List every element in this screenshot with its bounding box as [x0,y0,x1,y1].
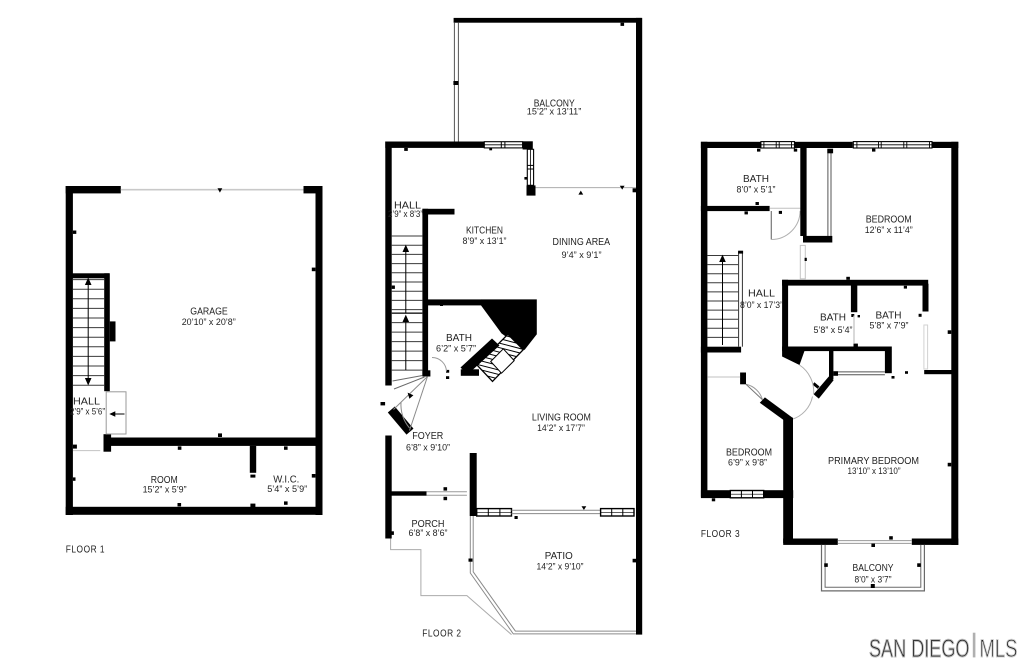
svg-text:2’9” x 5’6”: 2’9” x 5’6” [70,407,105,418]
svg-text:6’9” x 9’8”: 6’9” x 9’8” [728,457,767,468]
svg-text:BATH: BATH [446,333,472,344]
svg-text:LIVING ROOM: LIVING ROOM [532,412,591,423]
svg-text:20’10” x 20’8”: 20’10” x 20’8” [182,317,236,328]
svg-text:2’9” x 8’3”: 2’9” x 8’3” [388,209,423,220]
svg-text:8’0” x 3’7”: 8’0” x 3’7” [855,574,892,585]
svg-text:6’8” x 9’10”: 6’8” x 9’10” [406,443,450,454]
svg-text:6’8” x 8’6”: 6’8” x 8’6” [409,528,448,539]
svg-text:FLOOR 2: FLOOR 2 [422,628,461,639]
svg-text:13’10” x 13’10”: 13’10” x 13’10” [848,466,901,477]
svg-text:6’2” x 5’7”: 6’2” x 5’7” [436,343,476,354]
svg-text:8’9” x 13’1”: 8’9” x 13’1” [463,236,507,247]
svg-text:5’8” x 7’9”: 5’8” x 7’9” [870,321,909,332]
svg-text:PATIO: PATIO [545,551,573,562]
svg-text:FLOOR 3: FLOOR 3 [701,529,740,540]
svg-text:KITCHEN: KITCHEN [466,225,503,236]
svg-text:FOYER: FOYER [412,431,443,442]
svg-text:12’6” x 11’4”: 12’6” x 11’4” [865,225,913,236]
svg-text:GARAGE: GARAGE [190,306,228,317]
svg-text:8’0” x 5’1”: 8’0” x 5’1” [737,185,776,196]
svg-text:14’2” x 17’7”: 14’2” x 17’7” [537,423,585,434]
svg-text:BEDROOM: BEDROOM [866,214,912,225]
svg-text:BALCONY: BALCONY [853,563,894,574]
svg-text:MLS: MLS [980,635,1018,663]
svg-text:5’8” x 5’4”: 5’8” x 5’4” [814,325,853,336]
svg-text:FLOOR 1: FLOOR 1 [66,544,105,555]
svg-text:9’4” x 9’1”: 9’4” x 9’1” [562,250,602,261]
svg-text:14’2” x 9’10”: 14’2” x 9’10” [537,562,584,573]
svg-text:15’2” x 5’9”: 15’2” x 5’9” [143,485,187,496]
svg-text:8’0” x 17’3”: 8’0” x 17’3” [740,300,783,311]
svg-text:BATH: BATH [743,174,769,185]
svg-text:SAN DIEGO: SAN DIEGO [869,635,970,663]
svg-text:DINING AREA: DINING AREA [553,237,611,248]
svg-text:5’4” x 5’9”: 5’4” x 5’9” [267,484,307,495]
svg-text:15’2” x 13’11”: 15’2” x 13’11” [527,106,582,117]
svg-text:HALL: HALL [748,288,776,299]
svg-text:BATH: BATH [820,312,846,323]
